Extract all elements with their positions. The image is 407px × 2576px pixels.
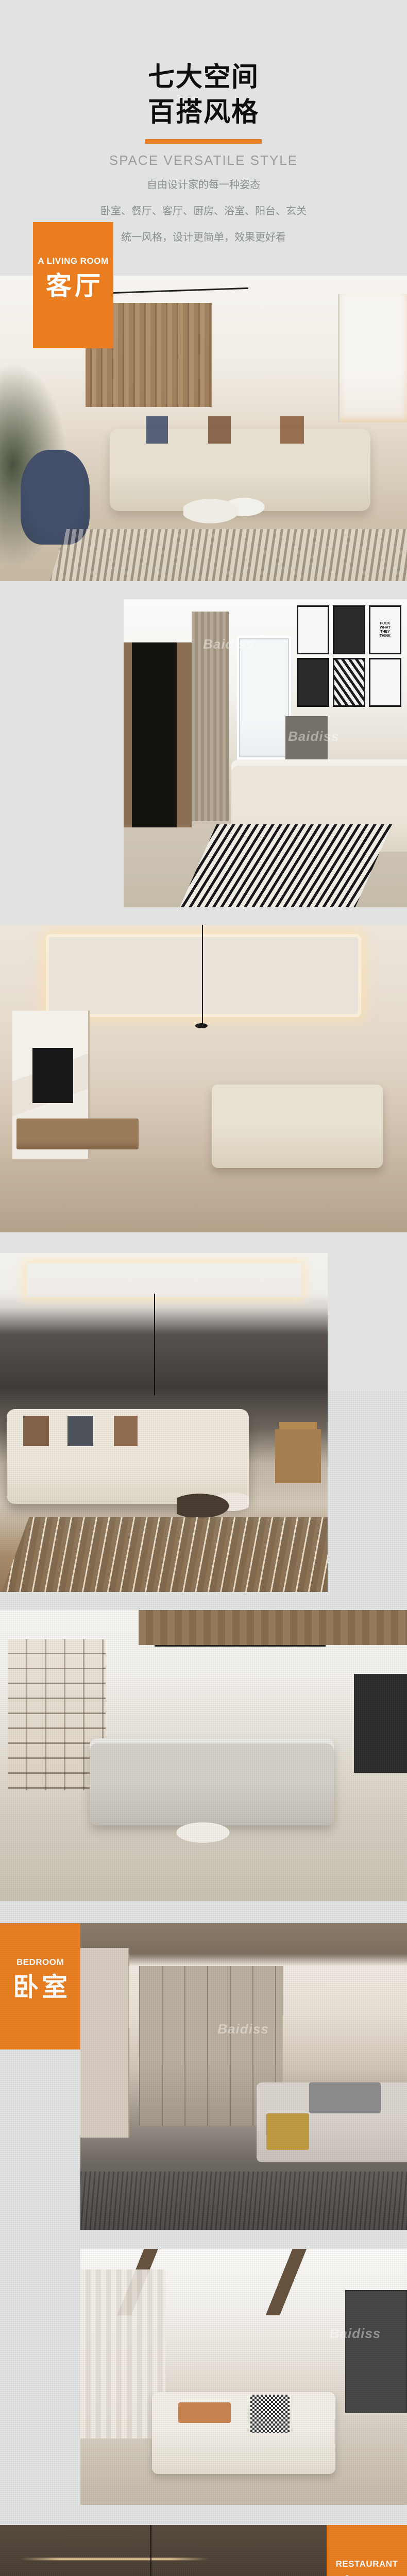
header: 七大空间 百搭风格 SPACE VERSATILE STYLE 自由设计家的每一… bbox=[0, 0, 407, 247]
marble-coffee-table bbox=[175, 1822, 232, 1843]
pendant-cord bbox=[150, 2525, 151, 2576]
wood-console bbox=[16, 1118, 139, 1149]
dark-carpet bbox=[80, 2172, 407, 2230]
section-label-zh: 卧室 bbox=[0, 1973, 80, 2002]
mustard-bench bbox=[266, 2113, 309, 2150]
sofa-pillows bbox=[23, 1416, 226, 1446]
dining-photo-1 bbox=[0, 2525, 327, 2576]
orange-throw bbox=[178, 2402, 230, 2423]
wood-side-table bbox=[275, 1429, 321, 1483]
picture-frame bbox=[369, 658, 401, 707]
gray-blanket bbox=[309, 2082, 381, 2113]
picture-frame bbox=[297, 658, 329, 707]
floor-lamp bbox=[154, 1294, 155, 1395]
title-line-2: 百搭风格 bbox=[0, 95, 407, 130]
bedroom-photo-2: Baidiss bbox=[80, 2249, 407, 2505]
page-title: 七大空间 百搭风格 bbox=[0, 60, 407, 130]
promo-long-page: 七大空间 百搭风格 SPACE VERSATILE STYLE 自由设计家的每一… bbox=[0, 0, 407, 2576]
zebra-print-frame bbox=[333, 658, 365, 707]
gray-sofa bbox=[90, 1738, 334, 1826]
cove-light-strip bbox=[20, 2558, 209, 2560]
section-label-bedroom: BEDROOM 卧室 bbox=[0, 1923, 80, 2049]
bedroom-door bbox=[80, 1948, 129, 2138]
living-room-photo-2: FUCK WHAT THEY THINK Baidiss Baidiss bbox=[124, 599, 407, 907]
section-label-zh: 客厅 bbox=[33, 272, 113, 300]
subtitle: SPACE VERSATILE STYLE bbox=[0, 152, 407, 168]
orange-divider bbox=[145, 139, 262, 144]
cove-lit-ceiling bbox=[49, 937, 358, 1014]
bedroom-photo-1: Baidiss bbox=[80, 1923, 407, 2230]
round-coffee-tables bbox=[177, 1490, 249, 1520]
sofa-pillows bbox=[146, 416, 333, 444]
built-in-cabinet bbox=[338, 294, 407, 422]
living-room-photo-3 bbox=[0, 925, 407, 1232]
typography-poster: FUCK WHAT THEY THINK bbox=[369, 605, 401, 654]
section-label-living-room: A LIVING ROOM 客厅 bbox=[33, 222, 113, 348]
description-line-2: 卧室、餐厅、客厅、厨房、浴室、阳台、玄关 bbox=[0, 202, 407, 221]
marble-coffee-tables bbox=[183, 496, 266, 524]
tv-wood-wall bbox=[124, 642, 192, 827]
tv-screen bbox=[32, 1048, 73, 1103]
gallery-frame-wall: FUCK WHAT THEY THINK bbox=[297, 605, 402, 707]
track-light bbox=[155, 1645, 326, 1647]
striped-rug bbox=[47, 529, 407, 581]
checkered-blanket bbox=[250, 2395, 290, 2433]
pendant-lamp bbox=[195, 1023, 208, 1028]
wood-ceiling-inlay bbox=[139, 1610, 407, 1645]
picture-frame bbox=[297, 605, 329, 654]
cove-lit-ceiling bbox=[26, 1263, 301, 1297]
beige-sofa bbox=[212, 1084, 383, 1167]
description-line-1: 自由设计家的每一种姿态 bbox=[0, 176, 407, 195]
black-white-striped-rug bbox=[178, 824, 393, 907]
curtain bbox=[192, 612, 229, 821]
section-label-en: BEDROOM bbox=[0, 1957, 80, 1968]
brown-striped-rug bbox=[2, 1517, 328, 1592]
section-label-en: A LIVING ROOM bbox=[33, 256, 113, 266]
section-label-restaurant: RESTAURANT 餐厅 bbox=[327, 2525, 407, 2576]
section-label-en: RESTAURANT bbox=[327, 2559, 407, 2569]
tv-screen bbox=[354, 1674, 407, 1773]
title-line-1: 七大空间 bbox=[0, 60, 407, 95]
living-room-photo-5 bbox=[0, 1610, 407, 1901]
tv-panel bbox=[345, 2290, 407, 2413]
window bbox=[237, 636, 291, 759]
living-room-photo-4 bbox=[0, 1253, 328, 1592]
pendant-cord bbox=[202, 925, 203, 1026]
picture-frame bbox=[333, 605, 365, 654]
